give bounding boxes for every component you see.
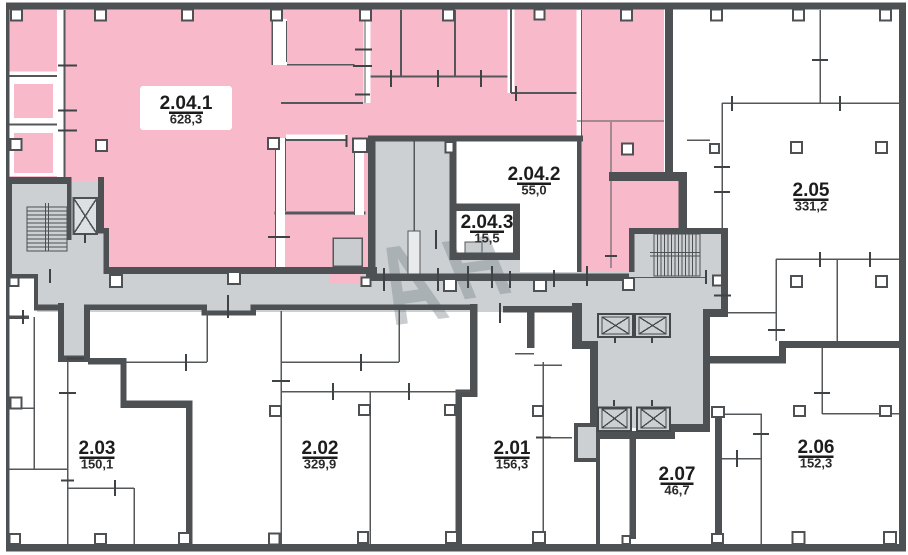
svg-text:156,3: 156,3 — [496, 457, 529, 472]
svg-text:55,0: 55,0 — [521, 183, 546, 198]
svg-text:15,5: 15,5 — [474, 231, 499, 246]
svg-text:152,3: 152,3 — [800, 456, 833, 471]
svg-text:46,7: 46,7 — [664, 483, 689, 498]
svg-text:331,2: 331,2 — [795, 199, 828, 214]
svg-text:329,9: 329,9 — [304, 457, 337, 472]
svg-text:150,1: 150,1 — [81, 457, 114, 472]
svg-text:628,3: 628,3 — [170, 112, 203, 127]
